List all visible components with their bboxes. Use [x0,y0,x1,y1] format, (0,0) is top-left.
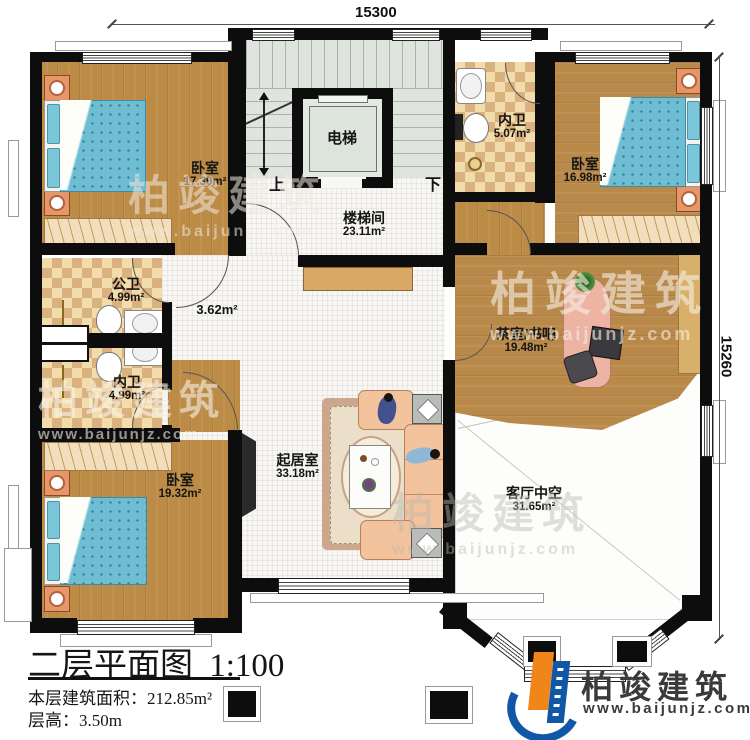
towel-rail [62,365,64,398]
room-name: 内卫 [87,374,167,390]
room-area: 17.30m² [160,176,250,189]
room-area: 31.65m² [474,501,594,514]
stair-treads-left [246,88,292,180]
room-area: 23.11m² [314,226,414,239]
room-label-bedroom-tr: 卧室 16.98m² [540,156,630,185]
room-name: 楼梯间 [314,210,414,226]
brand-logo: 柏竣建筑 www.baijunjz.com [505,648,747,736]
room-label-bath-public: 公卫 4.99m² [86,276,166,305]
floor-drain-icon [468,157,482,171]
wardrobe [578,215,702,245]
window [480,29,532,41]
porch-column [430,691,468,719]
nightstand [676,68,702,94]
side-porch [4,548,32,622]
elevator-door-jamb [312,179,321,188]
person-head [430,449,440,459]
table-decor-cups [371,458,379,466]
room-label-living: 起居室 33.18m² [250,452,345,481]
wall [228,36,246,256]
toilet-bowl [96,305,122,335]
wall [455,243,487,255]
window [701,107,713,185]
elevator-door-gap [318,177,366,188]
window [77,620,195,635]
room-area: 16.98m² [540,172,630,185]
wall [228,442,242,633]
window [575,52,670,64]
room-name: 卧室 [540,156,630,172]
elevator-door-jamb [362,179,371,188]
bed-pillow [47,104,60,144]
wall [35,243,175,255]
wall [35,428,180,442]
wall [193,618,238,633]
stair-treads-top [246,40,443,88]
room-area: 4.99m² [86,292,166,305]
floor-area-value: 212.85m² [147,689,212,708]
room-name: 卧室 [135,472,225,488]
side-counter [678,252,702,374]
window-sill [250,593,544,603]
nightstand [44,190,70,216]
bed-pillow [687,144,700,183]
nightstand [44,586,70,612]
window [82,52,192,64]
toilet-tank [455,114,463,140]
dimension-top-value: 15300 [355,4,397,21]
floor-height-line: 层高：3.50m [28,706,122,731]
arrow-up-icon [259,92,269,100]
room-name: 内卫 [472,112,552,128]
bed-pillow [687,101,700,140]
bed-sheet-fold [60,100,94,190]
room-name: 茶室/书吧 [466,326,586,342]
arrow-down-icon [259,168,269,176]
room-label-bath-inner: 内卫 4.99m² [87,374,167,403]
bed-pillow [47,543,60,581]
room-label-stair-hall: 楼梯间 23.11m² [314,210,414,239]
console-table [303,267,413,291]
dimension-line-top [112,24,715,25]
room-name: 卧室 [160,160,250,176]
stair-up-label: 上 [262,177,292,195]
room-area: 3.62m² [182,303,252,318]
terrace-rail [8,140,19,217]
room-name: 公卫 [86,276,166,292]
window [701,405,713,457]
wall [443,36,455,256]
floor-height-label: 层高： [28,711,79,730]
wall [408,578,455,592]
sink-basin [460,73,482,99]
room-name: 客厅中空 [474,485,594,501]
end-table-lamp [412,394,442,424]
plant-icon [575,272,595,292]
room-label-bedroom-tl: 卧室 17.30m² [160,160,250,189]
brand-website: www.baijunjz.com [583,700,750,717]
wardrobe [44,442,172,471]
window [278,578,410,594]
stair-direction: 上 [262,177,292,195]
room-label-void: 客厅中空 31.65m² [474,485,594,514]
sink-basin [132,313,158,334]
person-head [384,393,393,402]
dimension-right-value: 15260 [718,327,735,387]
room-label-bedroom-bl: 卧室 19.32m² [135,472,225,501]
room-area: 4.99m² [87,390,167,403]
floor-plan-canvas: 卧室 17.30m² 电梯 上 下 楼梯间 23.11m² 内卫 5.07m² … [0,0,750,740]
room-name: 电梯 [312,130,372,147]
room-label-elevator: 电梯 [312,130,372,147]
nightstand [676,186,702,212]
window [252,29,295,41]
window [392,29,440,41]
table-decor-flowers [362,478,376,492]
room-name: 起居室 [250,452,345,468]
room-area: 5.07m² [472,128,552,141]
wall [298,255,443,267]
coffee-table [349,445,391,509]
porch-column [228,691,256,717]
wall [443,255,455,287]
stair-direction: 下 [418,177,448,195]
stair-down-label: 下 [418,177,448,195]
room-area: 33.18m² [250,468,345,481]
window-sill [55,41,232,51]
bed-pillow [47,148,60,188]
wall [530,243,712,255]
bed-pillow [47,501,60,539]
stair-direction-line [263,98,265,170]
hallway-area-label: 3.62m² [182,303,252,318]
end-table-lamp [411,528,442,558]
table-decor-cups [360,455,367,462]
bed-sheet-fold [60,497,94,583]
wall [228,430,242,442]
elevator-vent [318,95,368,103]
stair-treads-right [393,88,443,180]
room-label-tea-room: 茶室/书吧 19.48m² [466,326,586,355]
floor-height-value: 3.50m [79,711,122,730]
nightstand [44,470,70,496]
wall [35,618,77,633]
room-area: 19.48m² [466,342,586,355]
wall [88,333,168,348]
nightstand [44,75,70,101]
computer-monitor [588,326,624,360]
room-label-bath-top: 内卫 5.07m² [472,112,552,141]
window-sill [560,41,682,51]
wall [30,52,42,633]
wall [238,578,280,592]
title-underline [28,677,240,680]
room-area: 19.32m² [135,488,225,501]
wall [455,192,545,202]
armchair [360,520,415,560]
